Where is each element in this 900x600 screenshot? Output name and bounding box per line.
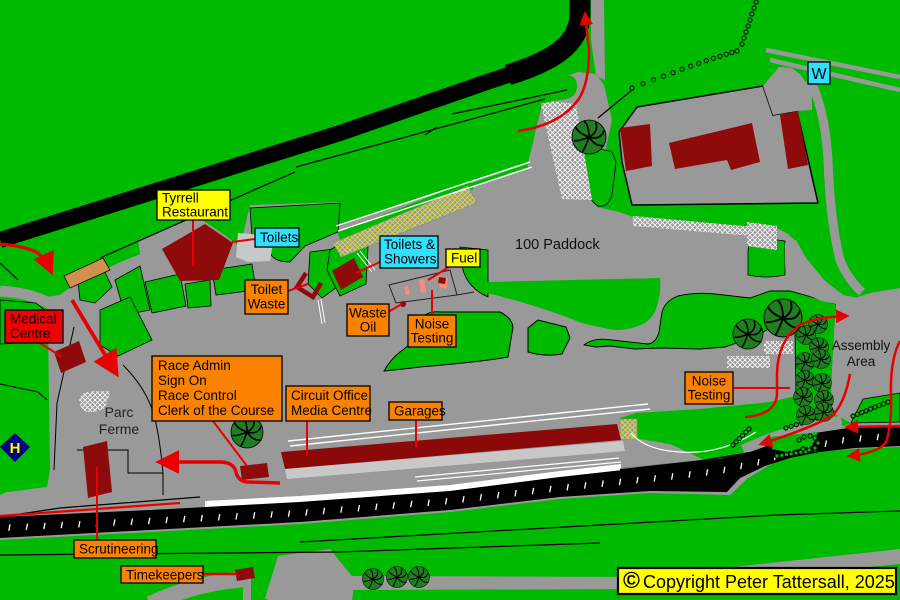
svg-text:Clerk of the Course: Clerk of the Course <box>158 403 274 418</box>
svg-text:W: W <box>811 66 827 83</box>
svg-text:Assembly: Assembly <box>832 338 891 353</box>
svg-text:Toilets: Toilets <box>260 230 299 245</box>
svg-text:Ferme: Ferme <box>99 421 140 437</box>
svg-text:Area: Area <box>847 354 876 369</box>
svg-text:Showers: Showers <box>384 252 437 267</box>
svg-text:Timekeepers: Timekeepers <box>126 568 204 583</box>
svg-text:Waste: Waste <box>349 306 387 321</box>
svg-text:Testing: Testing <box>688 388 731 403</box>
svg-text:Toilet: Toilet <box>251 282 283 297</box>
svg-text:Garages: Garages <box>394 404 446 419</box>
svg-text:Race Admin: Race Admin <box>158 358 231 373</box>
svg-text:100 Paddock: 100 Paddock <box>515 237 600 253</box>
svg-text:Scrutineering: Scrutineering <box>79 542 159 557</box>
svg-text:Oil: Oil <box>360 320 377 335</box>
svg-text:Restaurant: Restaurant <box>162 205 228 220</box>
svg-text:Circuit Office: Circuit Office <box>291 388 368 403</box>
svg-text:Testing: Testing <box>411 331 454 346</box>
svg-text:Tyrrell: Tyrrell <box>162 191 199 206</box>
svg-text:Parc: Parc <box>105 404 134 420</box>
svg-text:Medical: Medical <box>10 312 57 327</box>
svg-text:Race Control: Race Control <box>158 388 237 403</box>
svg-text:Centre: Centre <box>10 326 51 341</box>
svg-text:Media Centre: Media Centre <box>291 403 372 418</box>
svg-text:Waste: Waste <box>248 297 286 312</box>
svg-text:Noise: Noise <box>692 374 727 389</box>
svg-text:H: H <box>10 440 21 457</box>
svg-text:Fuel: Fuel <box>451 251 477 266</box>
svg-text:Toilets &: Toilets & <box>384 237 435 252</box>
svg-text:Sign On: Sign On <box>158 373 207 388</box>
svg-text:Noise: Noise <box>415 317 450 332</box>
